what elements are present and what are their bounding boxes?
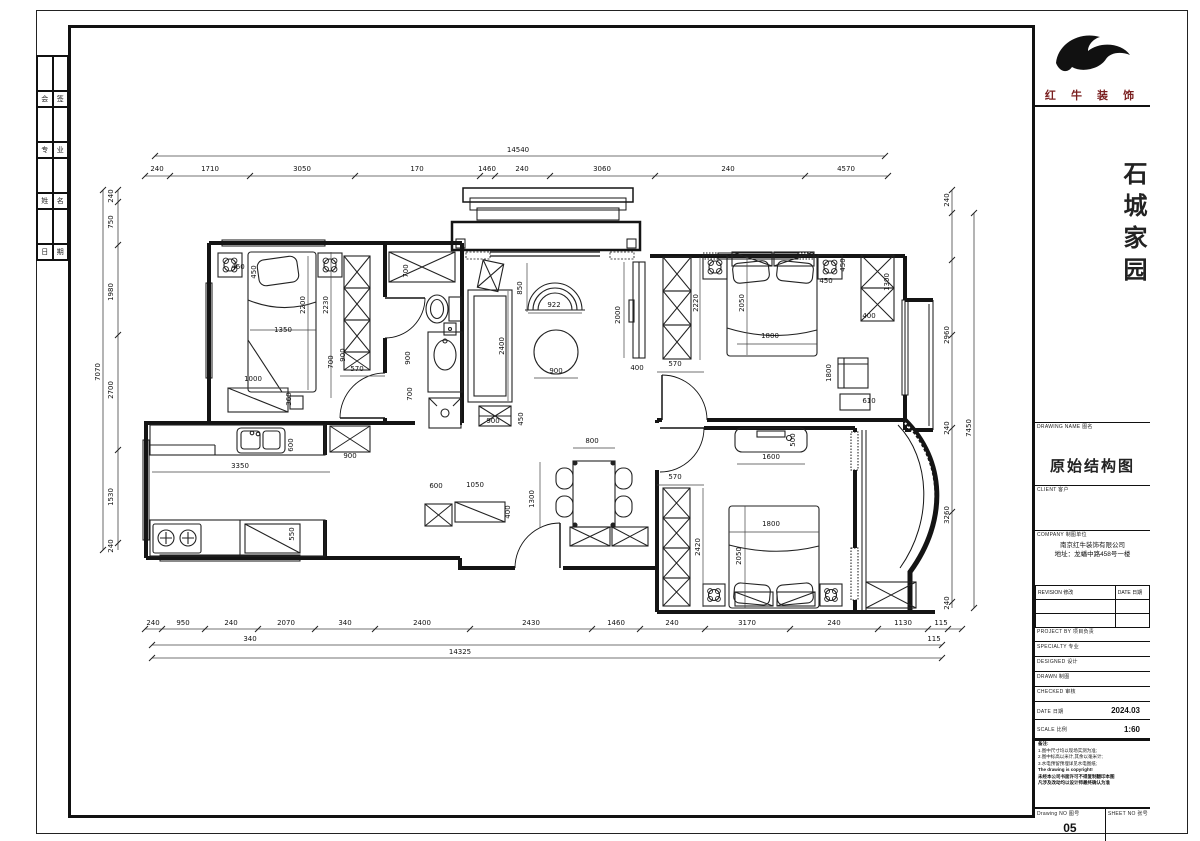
dimension-label: 1050 (466, 481, 484, 489)
dimension-label: 1460 (478, 165, 496, 173)
dimension-label: 1800 (762, 520, 780, 528)
dimension-label: 2220 (692, 294, 700, 312)
cabinet-x-mark (663, 325, 691, 359)
dimension-label: 900 (343, 452, 356, 460)
dimension-label: 115 (934, 619, 947, 627)
company-label: COMPANY 制图单位 (1035, 530, 1150, 538)
dimension-label: 240 (107, 189, 115, 202)
dimension-label: 2050 (735, 547, 743, 565)
dimension-label: 1710 (201, 165, 219, 173)
master-bedroom-furniture (663, 252, 894, 410)
dimension-label: 240 (515, 165, 528, 173)
dimension-label: 400 (504, 505, 512, 518)
dimension-label: 2420 (694, 538, 702, 556)
dimension-label: 340 (243, 635, 256, 643)
cabinet-x-mark (663, 518, 690, 548)
drawing-no-label: Drawing NO 图号 (1035, 809, 1105, 817)
client-label: CLIENT 客户 (1035, 485, 1150, 493)
dimension-label: 1980 (107, 283, 115, 301)
dimension-label: 115 (927, 635, 940, 643)
dimension-label: 240 (943, 421, 951, 434)
dimension-label: 3260 (943, 506, 951, 524)
brand-name: 红 牛 装 饰 (1035, 87, 1150, 103)
info-row-designed: DESIGNED 设计 (1035, 657, 1150, 672)
dimension-label: 240 (827, 619, 840, 627)
dimension-label: 570 (668, 473, 681, 481)
date-row: DATE 日期 2024.03 (1035, 702, 1150, 720)
cabinet-x-mark (344, 256, 370, 288)
info-row-specialty: SPECIALTY 专业 (1035, 642, 1150, 657)
entry-hall-furniture (468, 260, 645, 426)
dimension-label: 850 (516, 281, 524, 294)
date-value: 2024.03 (1111, 706, 1150, 715)
dimension-label: 4570 (837, 165, 855, 173)
cabinet-x-mark (663, 488, 690, 518)
drawing-name: 原始结构图 (1035, 455, 1150, 476)
dimension-label: 240 (721, 165, 734, 173)
dimension-label: 2000 (614, 306, 622, 324)
dimension-label: 570 (668, 360, 681, 368)
dimension-label: 700 (327, 355, 335, 368)
dimension-label: 1350 (274, 326, 292, 334)
dimension-label: 2400 (413, 619, 431, 627)
dimension-label: 2700 (107, 381, 115, 399)
dimension-label: 450 (839, 258, 847, 271)
cabinet-x-mark (663, 548, 690, 578)
drawing-sheet: 会签 专业 姓名 日期 (0, 0, 1200, 841)
dimension-label: 240 (224, 619, 237, 627)
dimension-label: 3060 (593, 165, 611, 173)
dimension-label: 170 (410, 165, 423, 173)
entry-porch (452, 188, 640, 259)
drawing-number-row: Drawing NO 图号 05 SHEET NO 张号 (1035, 807, 1150, 841)
dimension-label: 360 (285, 392, 293, 405)
revision-header-left: REVISION 修改 (1036, 586, 1116, 600)
dimension-label: 2050 (738, 294, 746, 312)
dimension-label: 700 (402, 264, 410, 277)
dimension-label: 3050 (293, 165, 311, 173)
revision-table: REVISION 修改 DATE 日期 (1035, 585, 1150, 628)
sheet-no-label: SHEET NO 张号 (1106, 809, 1150, 817)
dimension-label: 1800 (761, 332, 779, 340)
dimension-label: 900 (486, 417, 499, 425)
dimension-label: 500 (789, 433, 797, 446)
dimension-label: 240 (665, 619, 678, 627)
dimension-label: 600 (429, 482, 442, 490)
curved-balcony-wall (898, 420, 937, 612)
dimension-label: 1130 (894, 619, 912, 627)
dimension-label: 450 (517, 412, 525, 425)
cabinet-x-mark (663, 257, 691, 291)
dimension-label: 1800 (825, 364, 833, 382)
revision-header-right: DATE 日期 (1115, 586, 1149, 600)
dimension-label: 610 (862, 397, 875, 405)
dimension-label: 700 (406, 387, 414, 400)
bathroom-fixtures (389, 252, 462, 428)
dimension-label: 3170 (738, 619, 756, 627)
drawing-no-value: 05 (1035, 821, 1105, 835)
dimension-label: 950 (176, 619, 189, 627)
dimension-label: 240 (943, 193, 951, 206)
dimension-label: 1300 (528, 490, 536, 508)
dimension-label: 1600 (762, 453, 780, 461)
info-row-drawn: DRAWN 制图 (1035, 672, 1150, 687)
doors (340, 298, 707, 568)
dimension-label: 240 (943, 596, 951, 609)
cabinet-x-mark (330, 426, 370, 452)
dimension-label: 2070 (277, 619, 295, 627)
cabinet-x-mark (663, 578, 690, 606)
bull-logo-shape (1056, 35, 1130, 71)
dimension-label: 460 (231, 263, 244, 271)
dimension-label: 800 (585, 437, 598, 445)
dimension-label: 450 (819, 277, 832, 285)
info-row-checked: CHECKED 审核 (1035, 687, 1150, 702)
dimension-label: 570 (350, 365, 363, 373)
cabinet-x-mark (344, 320, 370, 352)
dimension-label: 240 (150, 165, 163, 173)
dimension-label: 550 (288, 527, 296, 540)
dimension-label: 340 (338, 619, 351, 627)
dimension-label: 7450 (965, 419, 973, 437)
dimension-label: 900 (339, 348, 347, 361)
dimension-lines (103, 156, 974, 658)
dimension-label: 240 (107, 539, 115, 552)
dimension-label: 400 (862, 312, 875, 320)
dimension-label: 1460 (607, 619, 625, 627)
project-name: 石城家园 (1035, 125, 1150, 325)
dimension-label: 400 (630, 364, 643, 372)
dimension-label: 14540 (507, 146, 529, 154)
dimension-label: 2200 (299, 296, 307, 314)
dimension-label: 3350 (231, 462, 249, 470)
info-row-project: PROJECT BY 项目负责 (1035, 627, 1150, 642)
dimension-label: 240 (146, 619, 159, 627)
dimension-label: 922 (547, 301, 560, 309)
dimension-label: 14325 (449, 648, 471, 656)
company-info: 南京红牛装饰有限公司 地址：龙蟠中路458号一楼 (1035, 541, 1150, 559)
scale-value: 1:60 (1124, 725, 1150, 734)
dimension-label: 1300 (883, 273, 891, 291)
cabinet-x-mark (612, 527, 648, 546)
floor-plan: 1454024017103050170146024030602404570240… (0, 0, 1030, 841)
kitchen-furniture (150, 425, 370, 556)
dimension-label: 750 (107, 215, 115, 228)
bay-outline (929, 300, 933, 430)
cabinet-x-mark (663, 291, 691, 325)
dimension-label: 900 (549, 367, 562, 375)
cabinet-x-mark (425, 504, 452, 526)
dimension-label: 900 (404, 351, 412, 364)
dimension-label: 1000 (244, 375, 262, 383)
drawing-name-label: DRAWING NAME 图名 (1035, 422, 1150, 430)
dimension-label: 2430 (522, 619, 540, 627)
title-block: 红 牛 装 饰 石城家园 DRAWING NAME 图名 原始结构图 CLIEN… (1032, 25, 1150, 818)
dimension-label: 7070 (94, 363, 102, 381)
bedroom-bottomright-furniture (663, 428, 916, 608)
scale-row: SCALE 比例 1:60 (1035, 720, 1150, 739)
dimension-label: 450 (250, 265, 258, 278)
dimension-label: 2230 (322, 296, 330, 314)
cabinet-x-mark (344, 288, 370, 320)
cabinet-x-mark (570, 527, 610, 546)
dimension-ticks (100, 153, 977, 661)
dimension-label: 1530 (107, 488, 115, 506)
dimension-label: 2400 (498, 337, 506, 355)
dimension-label: 600 (287, 438, 295, 451)
notes-block: 备注: 1.图中尺寸均以现场实测为准; 2.图中标高以米计,其余以毫米计; 3.… (1035, 739, 1150, 807)
dimension-label: 2960 (943, 326, 951, 344)
dining-furniture (425, 461, 648, 546)
